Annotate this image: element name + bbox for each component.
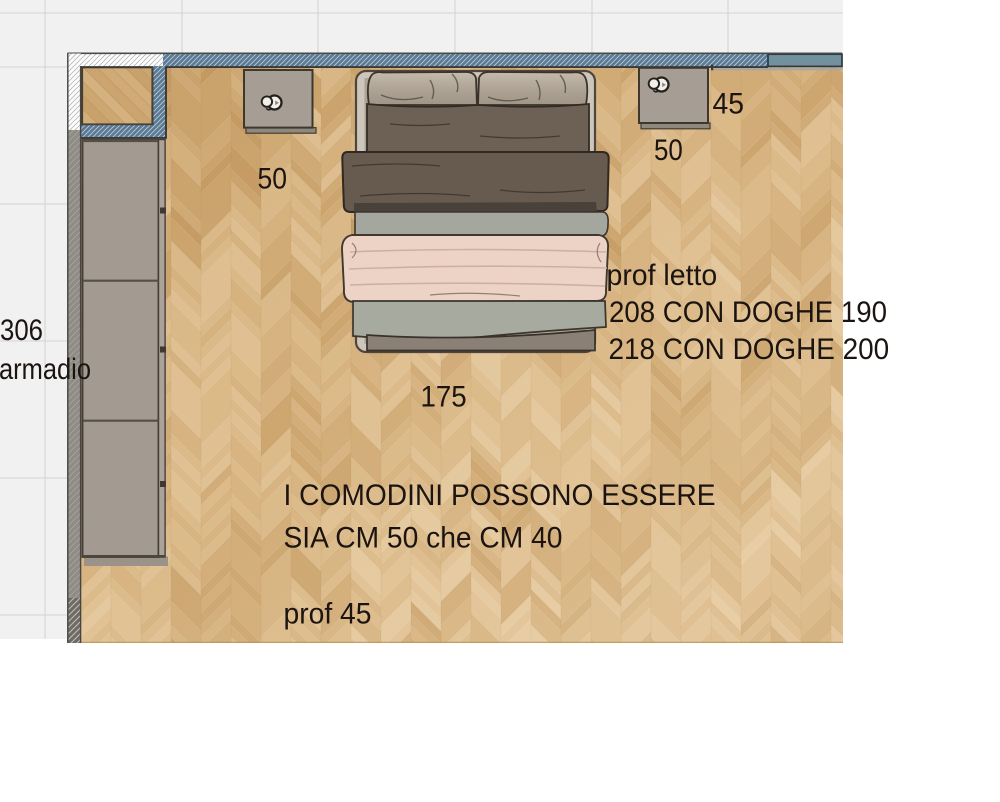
- svg-text:SIA CM 50 che CM 40: SIA CM 50 che CM 40: [284, 522, 563, 555]
- svg-text:prof 45: prof 45: [284, 598, 372, 631]
- svg-text:50: 50: [654, 134, 683, 167]
- svg-text:prof letto: prof letto: [607, 259, 718, 292]
- svg-text:45: 45: [713, 88, 745, 121]
- svg-text:50: 50: [258, 163, 288, 196]
- svg-text:armadio: armadio: [0, 353, 91, 386]
- svg-text:208 CON DOGHE 190: 208 CON DOGHE 190: [609, 296, 887, 329]
- svg-text:175: 175: [421, 381, 467, 414]
- svg-text:306: 306: [0, 314, 43, 347]
- svg-text:218 CON DOGHE 200: 218 CON DOGHE 200: [609, 333, 890, 366]
- svg-text:I COMODINI POSSONO ESSERE: I COMODINI POSSONO ESSERE: [284, 479, 716, 512]
